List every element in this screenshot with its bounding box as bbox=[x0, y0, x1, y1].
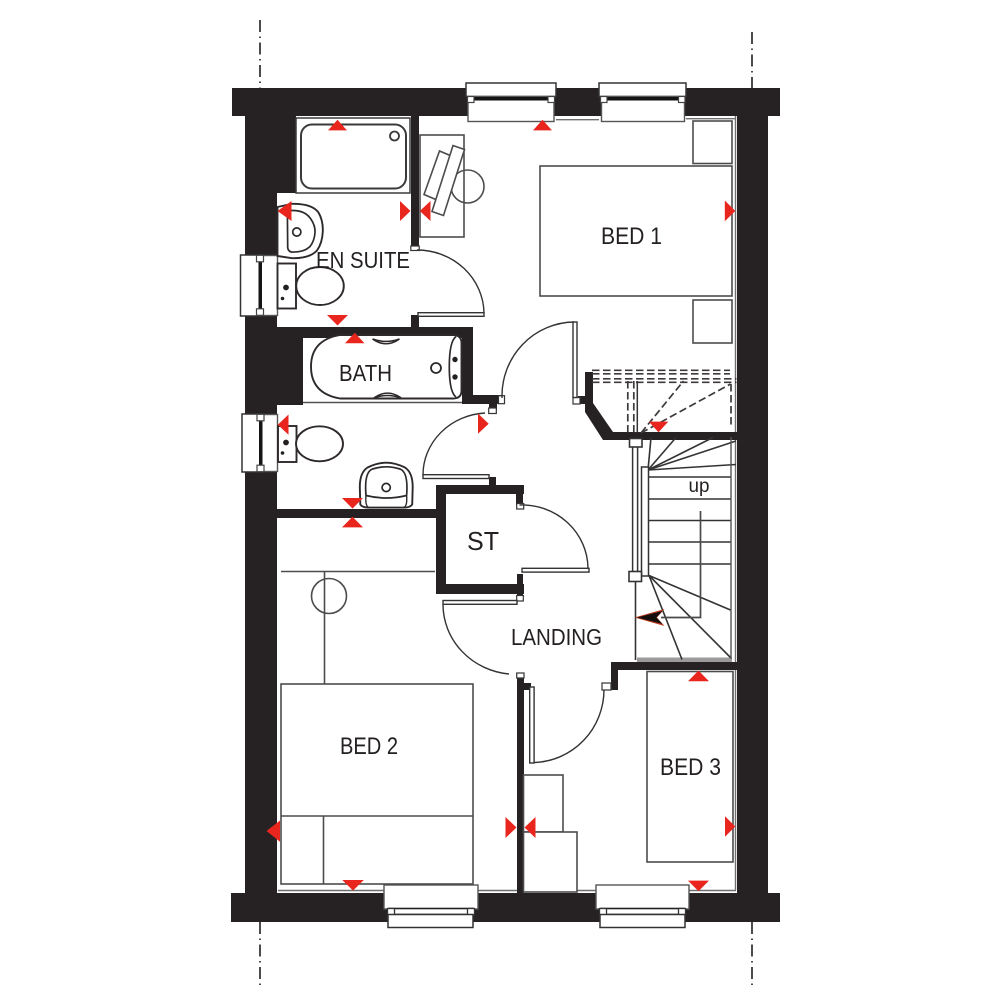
svg-text:BED 2: BED 2 bbox=[340, 733, 398, 760]
svg-text:LANDING: LANDING bbox=[511, 624, 602, 650]
svg-text:ST: ST bbox=[467, 526, 499, 556]
svg-text:up: up bbox=[689, 476, 710, 497]
svg-text:BATH: BATH bbox=[339, 360, 392, 386]
svg-text:EN SUITE: EN SUITE bbox=[316, 247, 410, 273]
svg-text:BED 1: BED 1 bbox=[601, 223, 662, 250]
svg-text:BED 3: BED 3 bbox=[660, 754, 721, 781]
